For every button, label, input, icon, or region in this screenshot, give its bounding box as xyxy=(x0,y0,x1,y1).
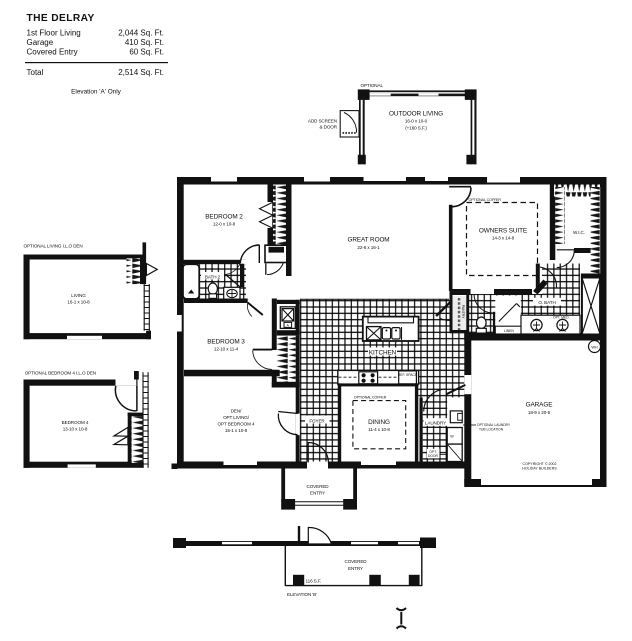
svg-text:TUB LOCATION: TUB LOCATION xyxy=(479,427,504,431)
svg-text:ENTRY: ENTRY xyxy=(348,566,363,571)
svg-text:O. BATH: O. BATH xyxy=(538,300,555,305)
svg-text:COVERED: COVERED xyxy=(306,484,329,489)
svg-text:OPTIONAL COFFER: OPTIONAL COFFER xyxy=(469,198,502,202)
svg-text:OPT BEDROOM 4: OPT BEDROOM 4 xyxy=(218,421,255,426)
svg-text:2,514 Sq. Ft.: 2,514 Sq. Ft. xyxy=(118,68,164,77)
svg-text:THE DELRAY: THE DELRAY xyxy=(27,13,95,24)
svg-text:BEDROOM 3: BEDROOM 3 xyxy=(207,338,245,345)
svg-text:OUTDOOR LIVING: OUTDOOR LIVING xyxy=(389,111,443,118)
svg-text:COPYRIGHT © 2002: COPYRIGHT © 2002 xyxy=(523,462,557,466)
svg-text:LIVING: LIVING xyxy=(71,293,86,298)
svg-text:22-6 x 16-1: 22-6 x 16-1 xyxy=(357,245,380,250)
svg-text:PANTRY: PANTRY xyxy=(461,305,465,319)
svg-text:GARAGE: GARAGE xyxy=(526,402,553,409)
svg-text:13-10 x 10-8: 13-10 x 10-8 xyxy=(63,426,88,431)
svg-text:ENTRY: ENTRY xyxy=(310,491,325,496)
svg-text:Total: Total xyxy=(27,68,44,77)
svg-text:LINEN: LINEN xyxy=(271,248,282,253)
svg-text:REF. SPACE: REF. SPACE xyxy=(398,373,418,377)
svg-text:(+160 S.F.): (+160 S.F.) xyxy=(405,126,427,131)
svg-text:FOYER: FOYER xyxy=(309,418,325,423)
svg-text:COVERED: COVERED xyxy=(344,559,367,564)
svg-text:LINEN: LINEN xyxy=(504,329,515,333)
svg-text:116 S.F.: 116 S.F. xyxy=(306,578,322,583)
svg-text:& DOOR: & DOOR xyxy=(319,125,337,130)
svg-text:WH: WH xyxy=(591,345,598,349)
svg-text:GREAT ROOM: GREAT ROOM xyxy=(347,237,389,244)
svg-text:Garage: Garage xyxy=(27,38,54,47)
svg-text:60 Sq. Ft.: 60 Sq. Ft. xyxy=(129,48,164,57)
svg-text:410 Sq. Ft.: 410 Sq. Ft. xyxy=(125,38,164,47)
svg-text:DINING: DINING xyxy=(368,419,390,426)
svg-text:16-0 x 10-0: 16-0 x 10-0 xyxy=(405,119,428,124)
svg-text:14-3 x 14-8: 14-3 x 14-8 xyxy=(492,236,515,241)
svg-text:Covered Entry: Covered Entry xyxy=(27,48,78,57)
svg-text:HOLIDAY BUILDERS: HOLIDAY BUILDERS xyxy=(522,467,557,471)
svg-text:BATH 2: BATH 2 xyxy=(205,274,221,279)
svg-text:DEN/: DEN/ xyxy=(231,409,242,414)
svg-text:OPTIONAL BEDROOM 4 I.L.O DEN: OPTIONAL BEDROOM 4 I.L.O DEN xyxy=(25,371,96,376)
svg-text:ADD SCREEN: ADD SCREEN xyxy=(308,119,337,124)
svg-text:18-9 x 20-5: 18-9 x 20-5 xyxy=(528,410,551,415)
svg-text:KITCHEN: KITCHEN xyxy=(369,350,397,357)
svg-text:W.I.C.: W.I.C. xyxy=(573,230,585,235)
svg-text:W: W xyxy=(450,435,454,439)
svg-text:15-1 x 10-8: 15-1 x 10-8 xyxy=(225,428,248,433)
svg-text:OPTIONAL LIVING I.L.O DEN: OPTIONAL LIVING I.L.O DEN xyxy=(24,244,83,249)
svg-text:12-0 x 10-8: 12-0 x 10-8 xyxy=(213,222,236,227)
svg-text:OPT LIVING/: OPT LIVING/ xyxy=(223,415,250,420)
svg-text:16-1 x 10-8: 16-1 x 10-8 xyxy=(67,300,90,305)
svg-text:OPTIONAL COFFER: OPTIONAL COFFER xyxy=(354,396,387,400)
svg-text:BEDROOM 2: BEDROOM 2 xyxy=(205,214,243,221)
svg-text:1st Floor Living: 1st Floor Living xyxy=(27,29,81,38)
svg-text:11-4 x 10-8: 11-4 x 10-8 xyxy=(368,427,390,432)
svg-text:OPTIONAL: OPTIONAL xyxy=(361,83,384,88)
svg-text:BEDROOM 4: BEDROOM 4 xyxy=(62,420,89,425)
svg-text:LAUNDRY: LAUNDRY xyxy=(425,421,446,426)
svg-text:12-10 x 11-4: 12-10 x 11-4 xyxy=(214,346,239,351)
svg-text:Elevation 'A' Only: Elevation 'A' Only xyxy=(71,89,121,96)
svg-text:OPT. MED.: OPT. MED. xyxy=(553,315,570,319)
svg-text:ELEVATION 'B': ELEVATION 'B' xyxy=(287,592,317,597)
svg-text:2,044 Sq. Ft.: 2,044 Sq. Ft. xyxy=(118,29,164,38)
svg-text:DOOR: DOOR xyxy=(428,454,439,458)
svg-text:OWNERS SUITE: OWNERS SUITE xyxy=(479,227,527,234)
